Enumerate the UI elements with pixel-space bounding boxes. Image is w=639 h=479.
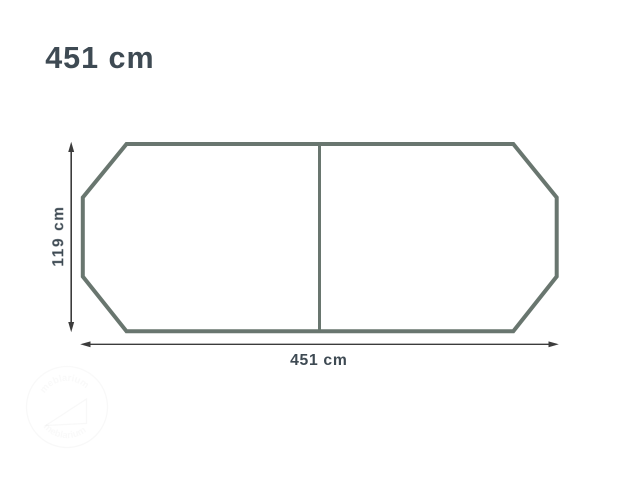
svg-text:meblarium: meblarium xyxy=(38,373,91,396)
